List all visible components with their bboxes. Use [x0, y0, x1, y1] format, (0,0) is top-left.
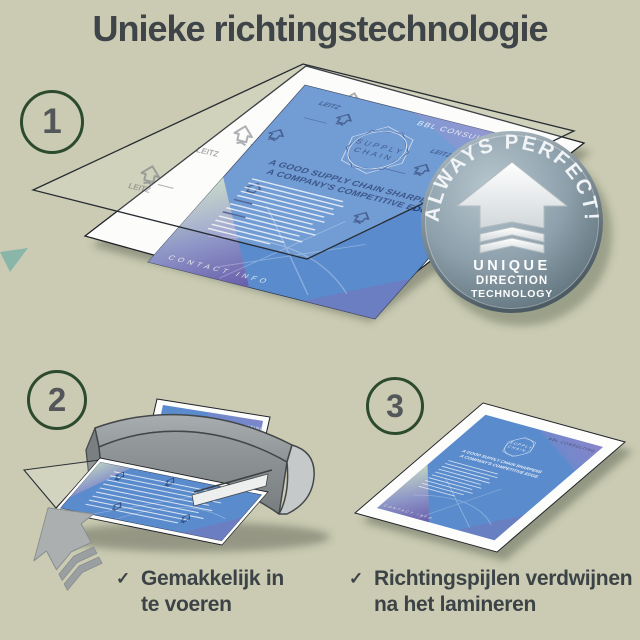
step-2-number: 2 — [48, 381, 66, 419]
bullet-text-line1: Gemakkelijk in — [141, 566, 284, 592]
always-perfect-badge: ALWAYS PERFECT! UNIQUE DIRECTION TECHNOL… — [421, 131, 612, 326]
check-icon: ✓ — [349, 566, 374, 592]
step-2-badge: 2 — [27, 370, 87, 430]
bullet-easy-feed: ✓ Gemakkelijk in te voeren — [116, 566, 284, 618]
badge-line-unique: UNIQUE — [473, 258, 550, 274]
illustration-canvas: LEITZ LEITZ BBL CONSULTING SUPPLY CHAIN — [0, 0, 640, 640]
step-3-badge: 3 — [366, 377, 424, 435]
step-1-badge: 1 — [20, 90, 84, 154]
infographic: Unieke richtingstechnologie — [0, 0, 640, 640]
check-icon: ✓ — [116, 566, 141, 592]
bullet-text-line2: na het lamineren — [349, 592, 632, 618]
bullet-arrows-disappear: ✓ Richtingspijlen verdwijnen na het lami… — [349, 566, 632, 618]
step-3-number: 3 — [386, 388, 404, 425]
badge-line-direction: DIRECTION — [476, 275, 548, 287]
foil-corner — [0, 248, 28, 272]
bullet-text-line2: te voeren — [116, 592, 284, 618]
bullet-text-line1: Richtingspijlen verdwijnen — [374, 566, 632, 592]
badge-line-technology: TECHNOLOGY — [471, 288, 553, 300]
step-1-number: 1 — [42, 102, 61, 142]
